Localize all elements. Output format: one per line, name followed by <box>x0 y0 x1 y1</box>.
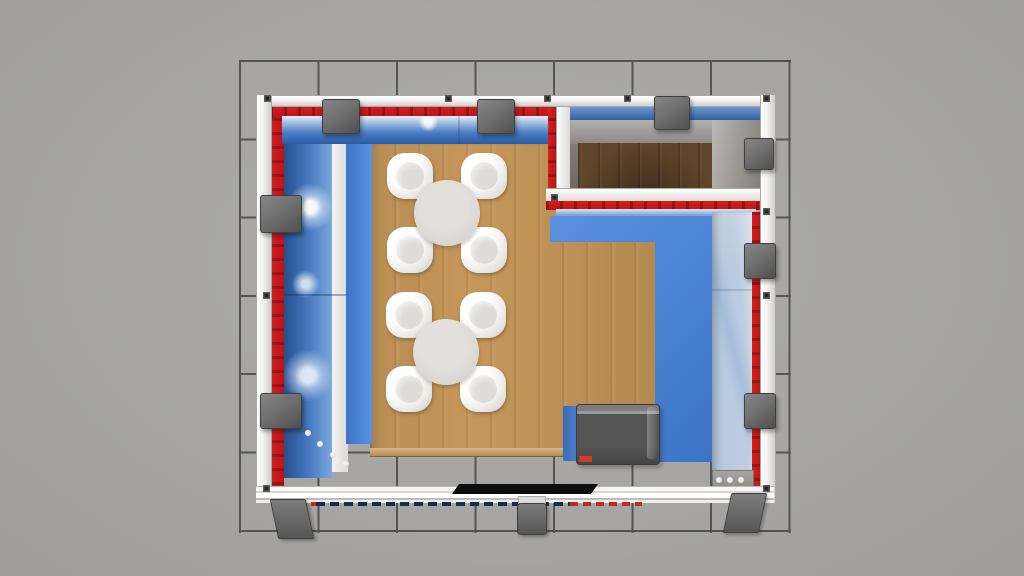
beam-dash-red-right <box>570 502 642 506</box>
counter-body <box>576 404 660 465</box>
tray-light-dot <box>738 477 744 483</box>
divider-wall-red-trim <box>548 104 556 198</box>
left-wall-panel-seam <box>284 294 346 296</box>
reception-counter <box>563 404 658 463</box>
frame-connector-node <box>263 292 270 299</box>
frame-connector-node <box>763 208 770 215</box>
spotlight-fixture-right-2 <box>744 243 776 279</box>
tray-light-dot <box>317 441 323 447</box>
spotlight-fixture-left-1 <box>260 195 302 233</box>
top-wall-panel-seam <box>458 116 460 144</box>
spotlight-fixture-storage <box>654 96 690 130</box>
frame-connector-node <box>544 95 551 102</box>
table-set-2 <box>386 292 506 412</box>
frame-connector-node <box>763 292 770 299</box>
counter-red-accent <box>579 456 592 462</box>
tray-light-dot <box>727 477 733 483</box>
frame-connector-node <box>263 485 270 492</box>
frame-connector-node <box>624 95 631 102</box>
frame-connector-node <box>264 95 271 102</box>
booth-render-canvas <box>0 0 1024 576</box>
front-black-mat <box>452 484 598 494</box>
spotlight-fixture-right-1 <box>744 138 774 170</box>
storage-dark-wood-floor <box>578 143 712 189</box>
tray-light-dot <box>716 477 722 483</box>
frame-connector-node <box>551 194 558 201</box>
frame-connector-node <box>763 485 770 492</box>
spotlight-fixture-right-3 <box>744 393 776 429</box>
frame-connector-node <box>445 95 452 102</box>
spotlight-fixture-top-1 <box>322 99 360 134</box>
frame-connector-node <box>763 95 770 102</box>
tray-light-dot <box>305 430 311 436</box>
spotlight-fixture-left-2 <box>260 393 302 429</box>
left-blue-floor-strip <box>346 112 372 444</box>
storage-divider-wall <box>556 95 571 200</box>
tray-light-dot <box>330 452 336 458</box>
frame-left-rail <box>256 95 272 503</box>
round-table <box>413 319 479 385</box>
spotlight-fixture-top-2 <box>477 99 515 134</box>
tray-light-dot <box>343 461 349 467</box>
round-table <box>414 180 480 246</box>
table-set-1 <box>387 153 507 273</box>
counter-top-rim <box>647 407 657 459</box>
support-foot-center <box>517 503 547 535</box>
left-wall-red-trim <box>270 104 284 490</box>
